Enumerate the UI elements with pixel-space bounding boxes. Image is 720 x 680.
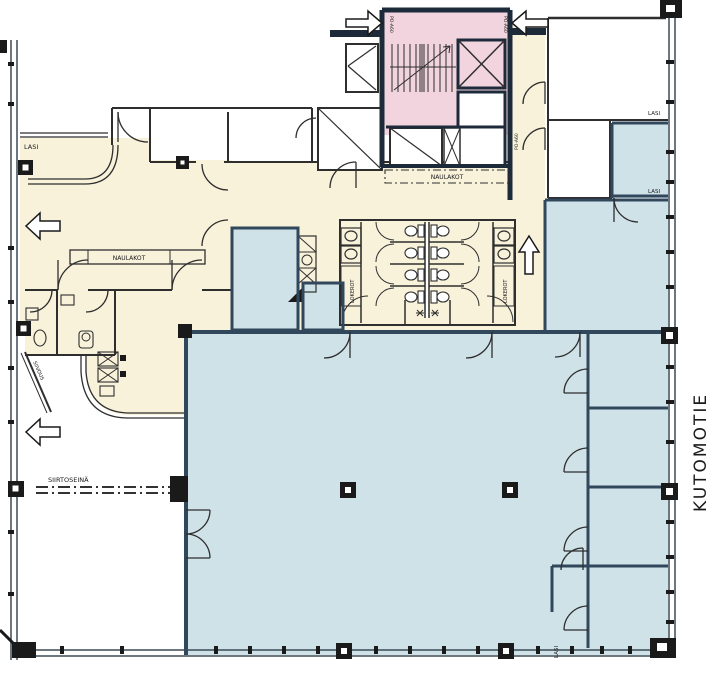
door-class-label: PO-A60 (388, 16, 394, 33)
floor-plan-page: KUTOMOTIE LASI LASI LASI LASI NAULAKOT N… (0, 0, 720, 680)
movable-wall-line (36, 487, 170, 493)
lasi-label: LASI (554, 646, 560, 658)
lasi-label: LASI (648, 189, 660, 195)
door-class-label: PO-A60 (502, 16, 508, 33)
floor-plan-svg: KUTOMOTIE LASI LASI LASI LASI NAULAKOT N… (0, 0, 720, 680)
lasi-label: LASI (648, 111, 660, 117)
naulakot-label: NAULAKOT (113, 255, 146, 262)
naulakot-label: NAULAKOT (431, 174, 464, 181)
lokerot-label: LOKEROT (350, 279, 356, 303)
siirtoseina-label: SIIRTOSEINÄ (48, 475, 89, 484)
lasi-label: LASI (24, 143, 38, 151)
exit-arrow-left-icon (26, 419, 60, 445)
lokerot-label: LOKEROT (503, 279, 509, 303)
open-hall-room (186, 332, 668, 655)
door-class-label: PO-A60 (514, 133, 520, 150)
street-name-label: KUTOMOTIE (691, 393, 711, 512)
